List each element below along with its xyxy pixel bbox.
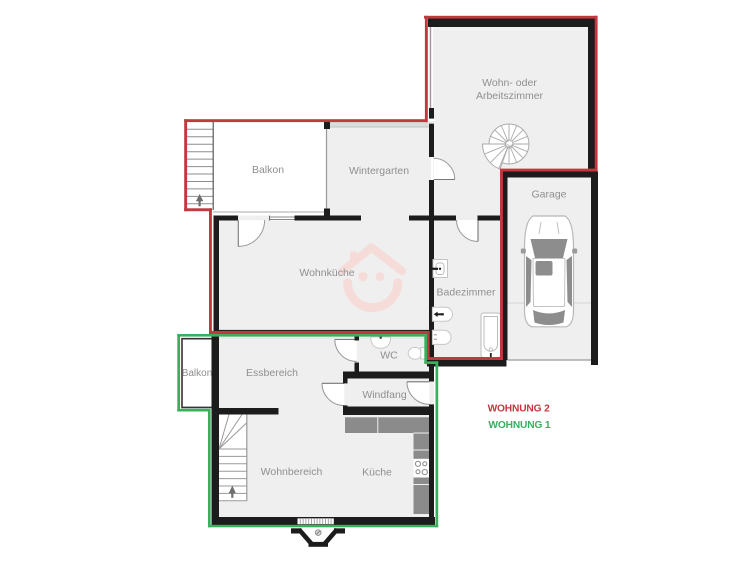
svg-text:Balkon: Balkon (252, 164, 284, 176)
svg-text:Küche: Küche (362, 467, 392, 479)
svg-text:Windfang: Windfang (362, 389, 407, 401)
svg-text:WC: WC (380, 350, 398, 362)
svg-text:Wohnküche: Wohnküche (299, 267, 354, 279)
svg-text:Wintergarten: Wintergarten (349, 165, 409, 177)
svg-text:Badezimmer: Badezimmer (437, 287, 496, 299)
svg-text:Garage: Garage (531, 189, 566, 201)
svg-text:Balkon: Balkon (182, 368, 213, 379)
svg-text:WOHNUNG 1: WOHNUNG 1 (488, 420, 551, 431)
svg-text:Essbereich: Essbereich (246, 367, 298, 379)
svg-text:WOHNUNG 2: WOHNUNG 2 (488, 404, 551, 415)
svg-text:Arbeitszimmer: Arbeitszimmer (476, 90, 544, 102)
svg-text:Wohn- oder: Wohn- oder (482, 77, 537, 89)
svg-text:Wohnbereich: Wohnbereich (261, 466, 323, 478)
